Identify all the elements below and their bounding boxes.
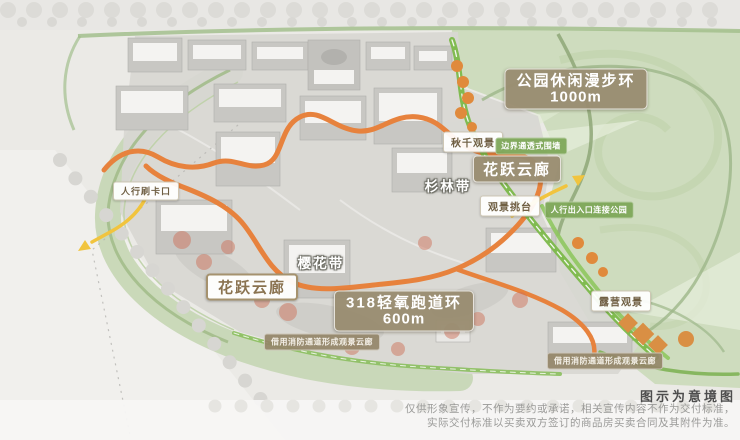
site-plan-page: 公园休闲漫步环 1000m 秋千观景 边界通透式围墙 花跃云廊 杉林带 观景挑台… — [0, 0, 740, 440]
label-swing-view: 秋千观景 — [443, 132, 503, 153]
disclaimer-line-1: 仅供形象宣传，不作为要约或承诺，相关宣传内容不作为交付标准， — [405, 403, 735, 417]
label-boundary-wall: 边界通透式围墙 — [495, 138, 567, 155]
label-runway-loop: 318轻氧跑道环 600m — [334, 291, 474, 332]
label-pedestrian-exit: 人行出入口连接公园 — [545, 202, 634, 219]
label-cloud-corridor-right: 花跃云廊 — [473, 156, 561, 183]
disclaimer-text: 仅供形象宣传，不作为要约或承诺，相关宣传内容不作为交付标准， 实际交付标准以买卖… — [405, 403, 735, 430]
site-plan-map — [0, 0, 740, 440]
north-tree-strip — [0, 0, 740, 30]
disclaimer-line-2: 实际交付标准以买卖双方签订的商品房买卖合同及其附件为准。 — [405, 417, 735, 431]
label-card-gate: 人行刷卡口 — [113, 182, 179, 201]
label-camping-view: 露营观景 — [591, 291, 651, 312]
label-cloud-corridor-left: 花跃云廊 — [206, 274, 298, 301]
label-view-deck: 观景挑台 — [480, 196, 540, 217]
label-fire-lane-left: 借用消防通道形成观景云廊 — [264, 334, 380, 351]
label-fire-lane-right: 借用消防通道形成观景云廊 — [547, 353, 663, 370]
label-park-stroll-loop: 公园休闲漫步环 1000m — [504, 69, 647, 110]
label-fir-belt: 杉林带 — [425, 175, 472, 195]
label-cherry-belt: 樱花带 — [298, 252, 345, 272]
